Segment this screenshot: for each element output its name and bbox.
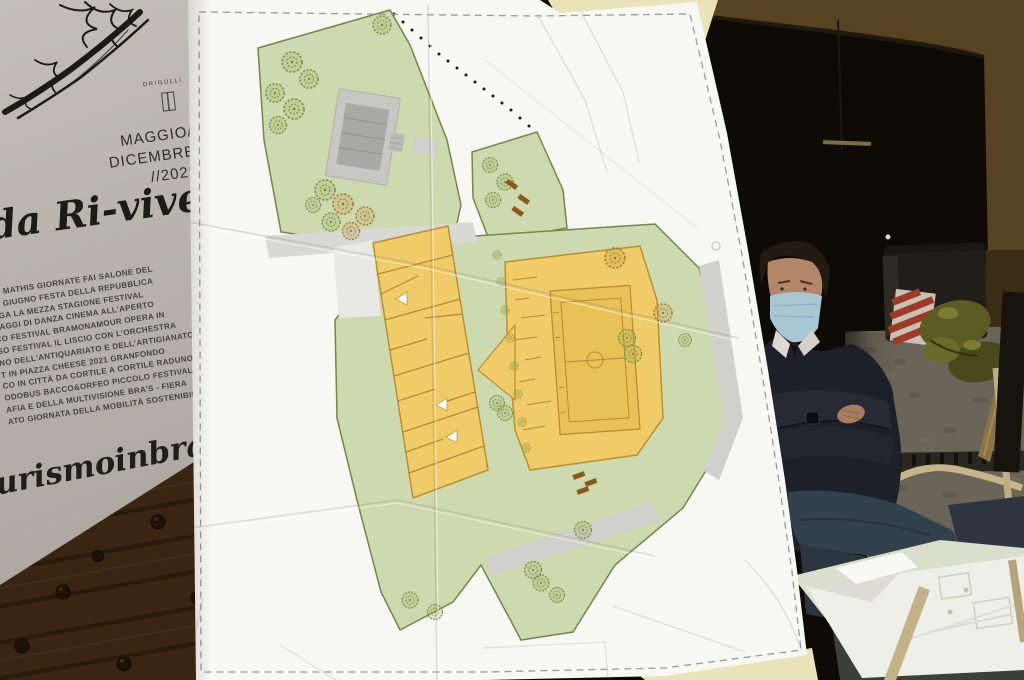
poster-event-list: ZO MATHIS GIORNATE FAI SALONE DEL I 2 GI… [0, 259, 203, 428]
small-light-glint [886, 235, 891, 240]
wristwatch [806, 412, 819, 424]
artist-stamp [161, 91, 176, 111]
photo-of-site-plan-presentation: DRIGULLI MAGGIO/ DICEMBRE //2021 da Ri-v… [0, 0, 1024, 680]
